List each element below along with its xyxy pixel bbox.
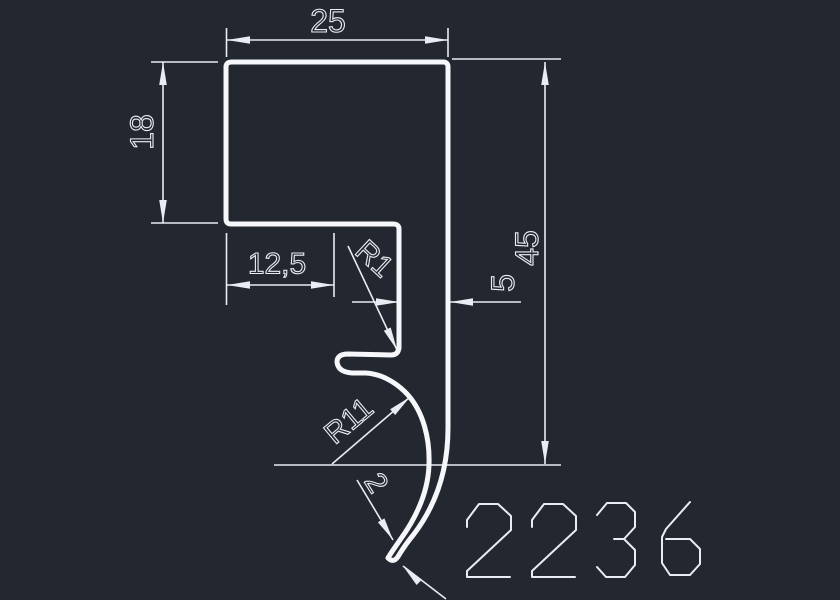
- dim-top-width: 25: [227, 3, 449, 57]
- dim-label-step-width: 12,5: [248, 248, 306, 281]
- dim-arrowhead: [159, 200, 167, 223]
- dim-arrowhead: [384, 328, 397, 350]
- cad-viewport: 251812,5R1545R112: [0, 0, 840, 600]
- dim-inner-radius: R1: [348, 234, 399, 350]
- dim-label-left-height: 18: [124, 114, 160, 150]
- part-number-digit-2: [532, 504, 576, 577]
- dim-label-top-width: 25: [310, 3, 346, 39]
- part-number: [467, 502, 700, 577]
- dim-tip-thickness: 2: [357, 467, 446, 599]
- part-number-digit-3: [597, 503, 635, 577]
- part-number-digit-2: [467, 504, 511, 577]
- dim-left-height: 18: [124, 62, 218, 223]
- dim-hook-radius: R11: [318, 391, 410, 464]
- cad-canvas: 251812,5R1545R112: [0, 0, 840, 600]
- dim-arrowhead: [390, 397, 410, 415]
- dim-arrowhead: [378, 518, 393, 540]
- dim-arrowhead: [541, 62, 549, 85]
- dim-label-tip-thickness: 2: [358, 467, 395, 499]
- dim-arrowhead: [227, 281, 250, 289]
- dim-step-width: 12,5: [227, 233, 335, 305]
- dim-arrowhead: [159, 62, 167, 85]
- dim-label-wall-width: 5: [485, 274, 521, 292]
- dim-label-hook-radius: R11: [318, 391, 380, 450]
- part-number-digit-6: [662, 502, 700, 575]
- dim-arrowhead: [425, 36, 448, 44]
- dim-arrowhead: [403, 566, 422, 585]
- extrusion-profile-outline: [226, 62, 448, 560]
- dim-arrowhead: [541, 441, 549, 464]
- dim-arrowhead: [376, 298, 399, 306]
- dim-arrowhead: [311, 281, 334, 289]
- dim-label-right-height: 45: [509, 230, 545, 266]
- dim-label-inner-radius: R1: [349, 234, 400, 284]
- dim-arrowhead: [227, 36, 250, 44]
- dim-arrowhead: [450, 298, 473, 306]
